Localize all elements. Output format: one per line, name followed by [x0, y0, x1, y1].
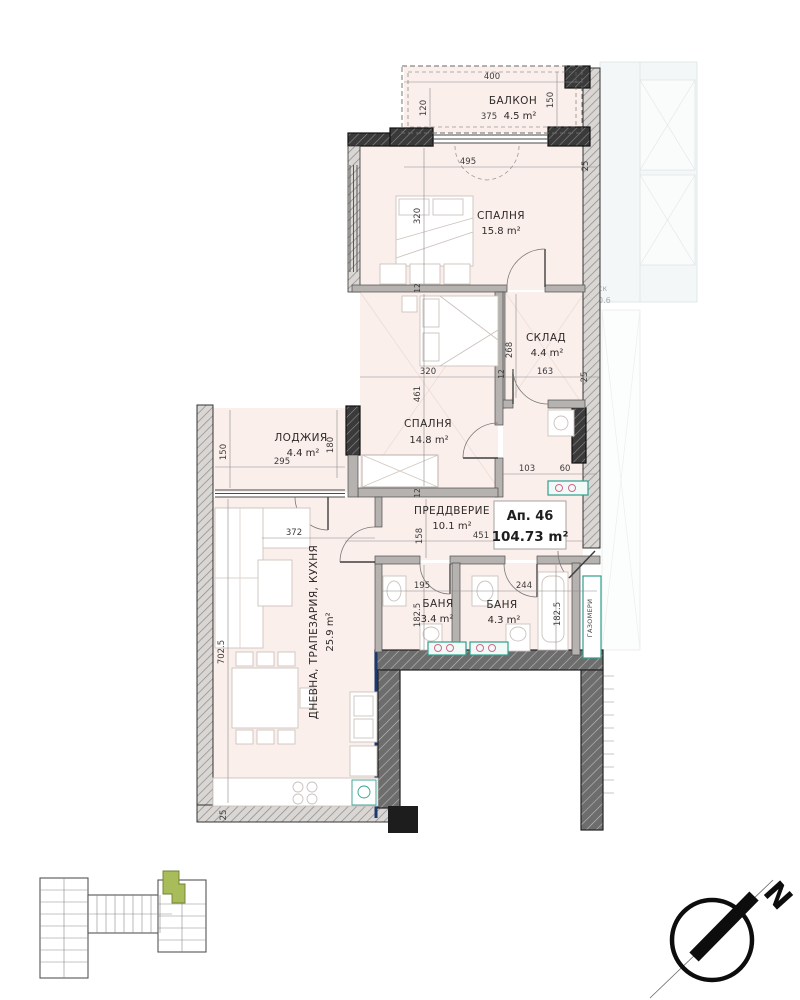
north-compass-icon: N — [650, 875, 799, 998]
apartment-area: 104.73 m² — [492, 529, 569, 545]
dim-wall-12c: 12 — [413, 488, 422, 498]
dim-bedroom1-window: 495 — [460, 157, 476, 167]
dim-shaft-width: 60 — [560, 464, 571, 474]
area-bath-2: 4.3 m² — [488, 615, 521, 626]
dim-hall-width: 451 — [473, 531, 489, 541]
dim-balcony-inner: 375 — [481, 112, 497, 122]
area-storage: 4.4 m² — [531, 348, 564, 359]
dim-wall-30: 30 — [409, 134, 419, 143]
label-living: ДНЕВНА, ТРАПЕЗАРИЯ, КУХНЯ — [308, 545, 320, 719]
label-bedroom-1: СПАЛНЯ — [477, 210, 525, 222]
label-loggia: ЛОДЖИЯ — [274, 432, 327, 444]
label-storage: СКЛАД — [526, 332, 566, 344]
bath2-toilet — [506, 624, 530, 651]
dim-niche-width: 103 — [519, 464, 535, 474]
dim-living-wall-bottom: 25 — [219, 810, 229, 821]
area-bath-1: 3.4 m² — [421, 614, 454, 625]
dim-bath2-width: 244 — [516, 581, 532, 591]
label-bath-2: БАНЯ — [486, 599, 517, 611]
dim-party-wall-mid: 25 — [580, 372, 590, 383]
dim-storage-width: 163 — [537, 367, 553, 377]
area-living: 25.9 m² — [325, 612, 336, 651]
area-bedroom-1: 15.8 m² — [481, 226, 520, 237]
apartment-info-box: Ап. 46 104.73 m² — [492, 501, 569, 549]
area-bedroom-2: 14.8 m² — [409, 435, 448, 446]
label-bath-1: БАНЯ — [422, 598, 453, 610]
dim-wall-12a: 12 — [413, 283, 422, 293]
gas-meters-label: ГАЗОМЕРИ — [586, 599, 594, 638]
dim-bedroom2-width: 320 — [420, 367, 436, 377]
area-balcony: 4.5 m² — [504, 111, 537, 122]
kitchen-cabinet — [350, 746, 377, 776]
label-hall: ПРЕДДВЕРИЕ — [414, 505, 490, 517]
area-loggia: 4.4 m² — [287, 448, 320, 459]
dim-storage-depth: 268 — [505, 342, 515, 358]
dim-balcony-width: 400 — [484, 72, 500, 82]
dim-balcony-left: 120 — [419, 100, 429, 116]
floor-plan-page: ск 0.6 — [0, 0, 800, 1000]
dim-living-width: 372 — [286, 528, 302, 538]
dim-bedroom1-depth: 320 — [413, 208, 423, 224]
area-hall: 10.1 m² — [432, 521, 471, 532]
dim-bath1-width: 195 — [414, 581, 430, 591]
apartment-number: Ап. 46 — [507, 509, 554, 524]
coffee-table — [258, 560, 292, 606]
floor-plan-drawing: ск 0.6 — [0, 0, 800, 1000]
washing-machine — [548, 410, 574, 436]
dim-bath2-depth: 182.5 — [553, 602, 563, 626]
dim-loggia-depth: 150 — [219, 444, 229, 460]
dim-balcony-right: 150 — [546, 92, 556, 108]
north-label: N — [756, 875, 799, 917]
dim-party-wall-top: 25 — [581, 161, 591, 172]
label-bedroom-2: СПАЛНЯ — [404, 418, 452, 430]
dim-living-depth: 702.5 — [217, 640, 227, 664]
adjacent-structures: ск 0.6 — [598, 62, 697, 793]
dining-table — [232, 668, 298, 728]
key-plan — [40, 871, 206, 978]
label-balcony: БАЛКОН — [489, 95, 537, 107]
dim-wall-12b: 12 — [497, 369, 506, 379]
dim-bedroom2-depth: 461 — [413, 386, 423, 402]
kitchen-sink — [352, 780, 376, 805]
dim-hall-depth: 158 — [415, 528, 425, 544]
